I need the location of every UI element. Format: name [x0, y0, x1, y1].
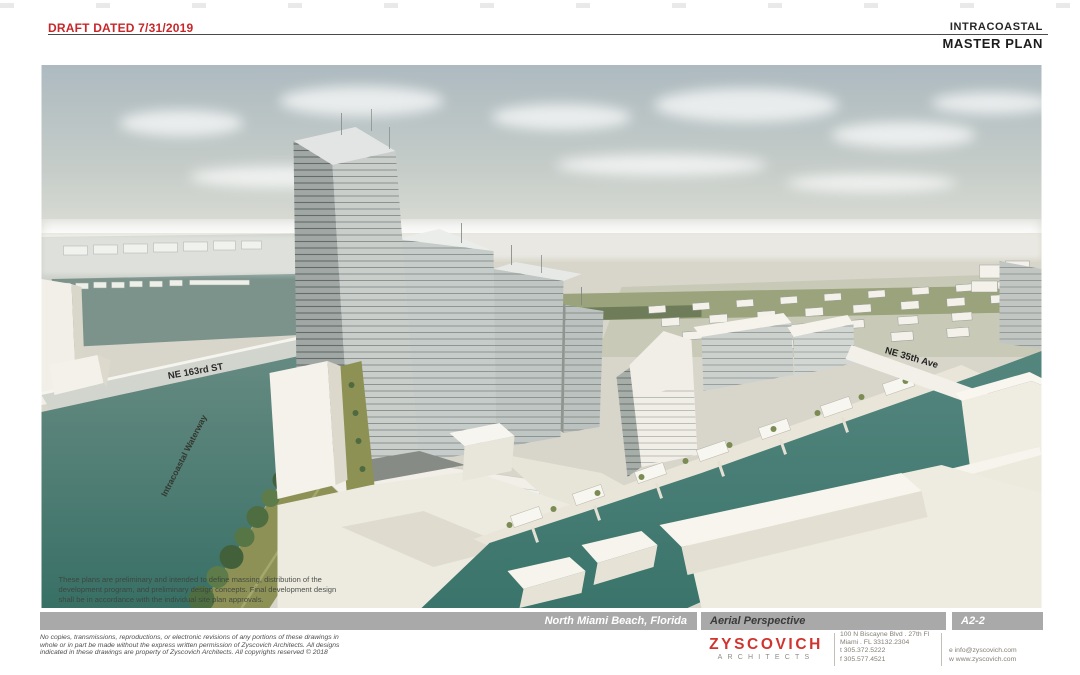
white-slab-building [270, 361, 348, 499]
firm-name: ZYSCOVICH [703, 637, 829, 652]
project-name-line1: INTRACOASTAL [950, 21, 1043, 33]
location-label: North Miami Beach, Florida [545, 615, 687, 627]
firm-email: e info@zyscovich.com [949, 647, 1017, 656]
firm-address: 100 N Biscayne Blvd . 27th Fl Miami . FL… [840, 631, 929, 664]
titleblock-location-bar: North Miami Beach, Florida [40, 612, 697, 630]
project-name-line2: MASTER PLAN [943, 36, 1044, 51]
firm-web: w www.zyscovich.com [949, 656, 1017, 665]
draft-date-label: DRAFT DATED 7/31/2019 [48, 21, 193, 35]
firm-phone: t 305.372.5222 [840, 647, 929, 655]
right-edge-building [1000, 261, 1042, 349]
titleblock-sheet-title-bar: Aerial Perspective [701, 612, 946, 630]
copyright-line-3: indicated in these drawings are property… [40, 649, 430, 657]
firm-contact: e info@zyscovich.com w www.zyscovich.com [949, 647, 1017, 664]
header-rule [48, 34, 1048, 35]
titleblock-divider-2 [941, 633, 942, 666]
firm-fax: f 305.577.4521 [840, 656, 929, 664]
copyright-note: No copies, transmissions, reproductions,… [40, 634, 430, 657]
aerial-rendering: NE 163rd ST Intracoastal Waterway NE 35t… [40, 65, 1043, 608]
firm-address-line2: Miami . FL 33132.2304 [840, 639, 929, 647]
firm-tagline: ARCHITECTS [703, 654, 829, 661]
titleblock-sheet-number-bar: A2-2 [952, 612, 1043, 630]
sheet-number-label: A2-2 [961, 615, 985, 627]
drawing-sheet: DRAFT DATED 7/31/2019 INTRACOASTAL MASTE… [0, 0, 1080, 675]
firm-address-line1: 100 N Biscayne Blvd . 27th Fl [840, 631, 929, 639]
copyright-line-1: No copies, transmissions, reproductions,… [40, 634, 430, 642]
sheet-title-label: Aerial Perspective [710, 615, 805, 627]
firm-logo: ZYSCOVICH ARCHITECTS [703, 637, 829, 661]
scan-artifacts [0, 3, 1080, 8]
titleblock-divider-1 [834, 633, 835, 666]
